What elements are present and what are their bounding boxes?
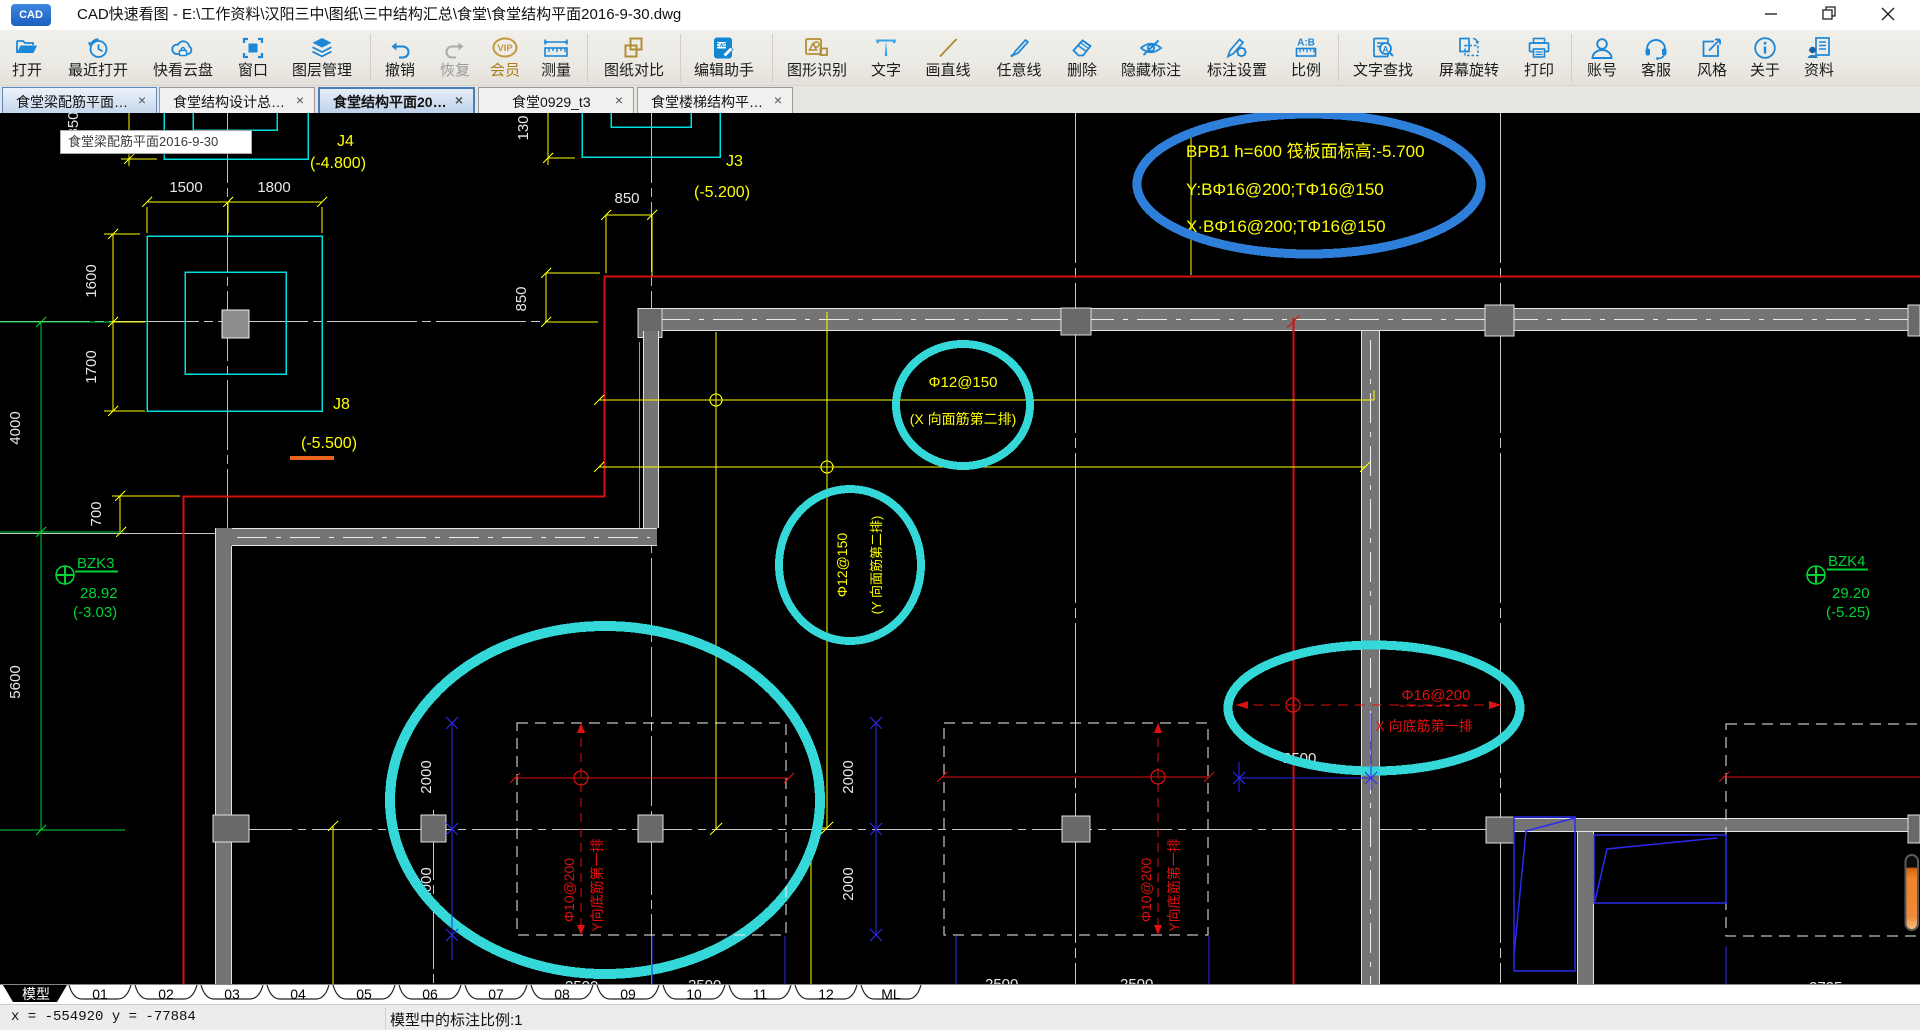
svg-text:Y向底筋第一排: Y向底筋第一排 — [1166, 838, 1182, 931]
svg-text:(-5.500): (-5.500) — [301, 435, 357, 452]
svg-text:4000: 4000 — [7, 411, 24, 444]
svg-text:Φ16@200: Φ16@200 — [1402, 687, 1471, 704]
svg-text:850: 850 — [513, 286, 530, 311]
svg-text:X·BΦ16@200;TΦ16@150: X·BΦ16@200;TΦ16@150 — [1186, 217, 1386, 236]
svg-text:02: 02 — [158, 986, 174, 1002]
svg-text:(-4.800): (-4.800) — [310, 155, 366, 172]
svg-text:(X 向面筋第二排): (X 向面筋第二排) — [910, 411, 1017, 427]
svg-text:1500: 1500 — [169, 179, 202, 196]
svg-text:1600: 1600 — [83, 264, 100, 297]
svg-text:J8: J8 — [333, 396, 350, 413]
svg-text:Φ10@200: Φ10@200 — [561, 858, 577, 923]
svg-text:(-5.25): (-5.25) — [1826, 604, 1870, 621]
svg-text:Φ12@150: Φ12@150 — [929, 374, 998, 391]
svg-text:Y:BΦ16@200;TΦ16@150: Y:BΦ16@200;TΦ16@150 — [1186, 180, 1384, 199]
svg-text:J3: J3 — [726, 153, 743, 170]
svg-text:BPB1 h=600 筏板面标高:-5.700: BPB1 h=600 筏板面标高:-5.700 — [1186, 142, 1425, 161]
svg-text:CAD: CAD — [716, 43, 727, 49]
svg-text:04: 04 — [290, 986, 306, 1002]
svg-text:01: 01 — [92, 986, 108, 1002]
svg-text:03: 03 — [224, 986, 240, 1002]
svg-text:850: 850 — [614, 190, 639, 207]
svg-text:(-5.200): (-5.200) — [694, 184, 750, 201]
svg-text:2500: 2500 — [688, 977, 721, 984]
svg-text:09: 09 — [620, 986, 636, 1002]
svg-text:Y向底筋第一排: Y向底筋第一排 — [589, 838, 605, 931]
svg-text:5600: 5600 — [7, 665, 24, 698]
svg-text:130: 130 — [515, 115, 532, 140]
svg-text:700: 700 — [88, 501, 105, 526]
svg-text:1700: 1700 — [83, 350, 100, 383]
svg-text:2500: 2500 — [985, 976, 1018, 984]
svg-text:J4: J4 — [337, 133, 354, 150]
svg-text:2500: 2500 — [1120, 976, 1153, 984]
svg-text:BZK4: BZK4 — [1828, 553, 1866, 570]
svg-text:ML: ML — [881, 986, 901, 1002]
svg-text:Φ10@200: Φ10@200 — [1138, 858, 1154, 923]
svg-text:模型: 模型 — [22, 986, 50, 1002]
svg-text:1800: 1800 — [257, 179, 290, 196]
svg-text:2000: 2000 — [418, 760, 435, 793]
svg-text:28.92: 28.92 — [80, 585, 118, 602]
svg-text:10: 10 — [686, 986, 702, 1002]
svg-text:11: 11 — [753, 986, 768, 1002]
svg-text:BZK3: BZK3 — [77, 555, 115, 572]
svg-text:(-3.03): (-3.03) — [73, 604, 117, 621]
svg-text:06: 06 — [422, 986, 438, 1002]
svg-text:X 向底筋第一排: X 向底筋第一排 — [1375, 718, 1472, 734]
svg-text:07: 07 — [488, 986, 504, 1002]
svg-text:29.20: 29.20 — [1832, 585, 1870, 602]
svg-text:A: A — [1383, 45, 1389, 54]
svg-text:12: 12 — [818, 986, 834, 1002]
svg-text:2000: 2000 — [840, 867, 857, 900]
svg-text:08: 08 — [554, 986, 570, 1002]
svg-text:Φ12@150: Φ12@150 — [834, 533, 850, 598]
svg-text:05: 05 — [356, 986, 372, 1002]
svg-text:2000: 2000 — [840, 760, 857, 793]
svg-text:(Y 向面筋第二排): (Y 向面筋第二排) — [869, 516, 884, 615]
svg-text:A:B: A:B — [1297, 38, 1315, 49]
